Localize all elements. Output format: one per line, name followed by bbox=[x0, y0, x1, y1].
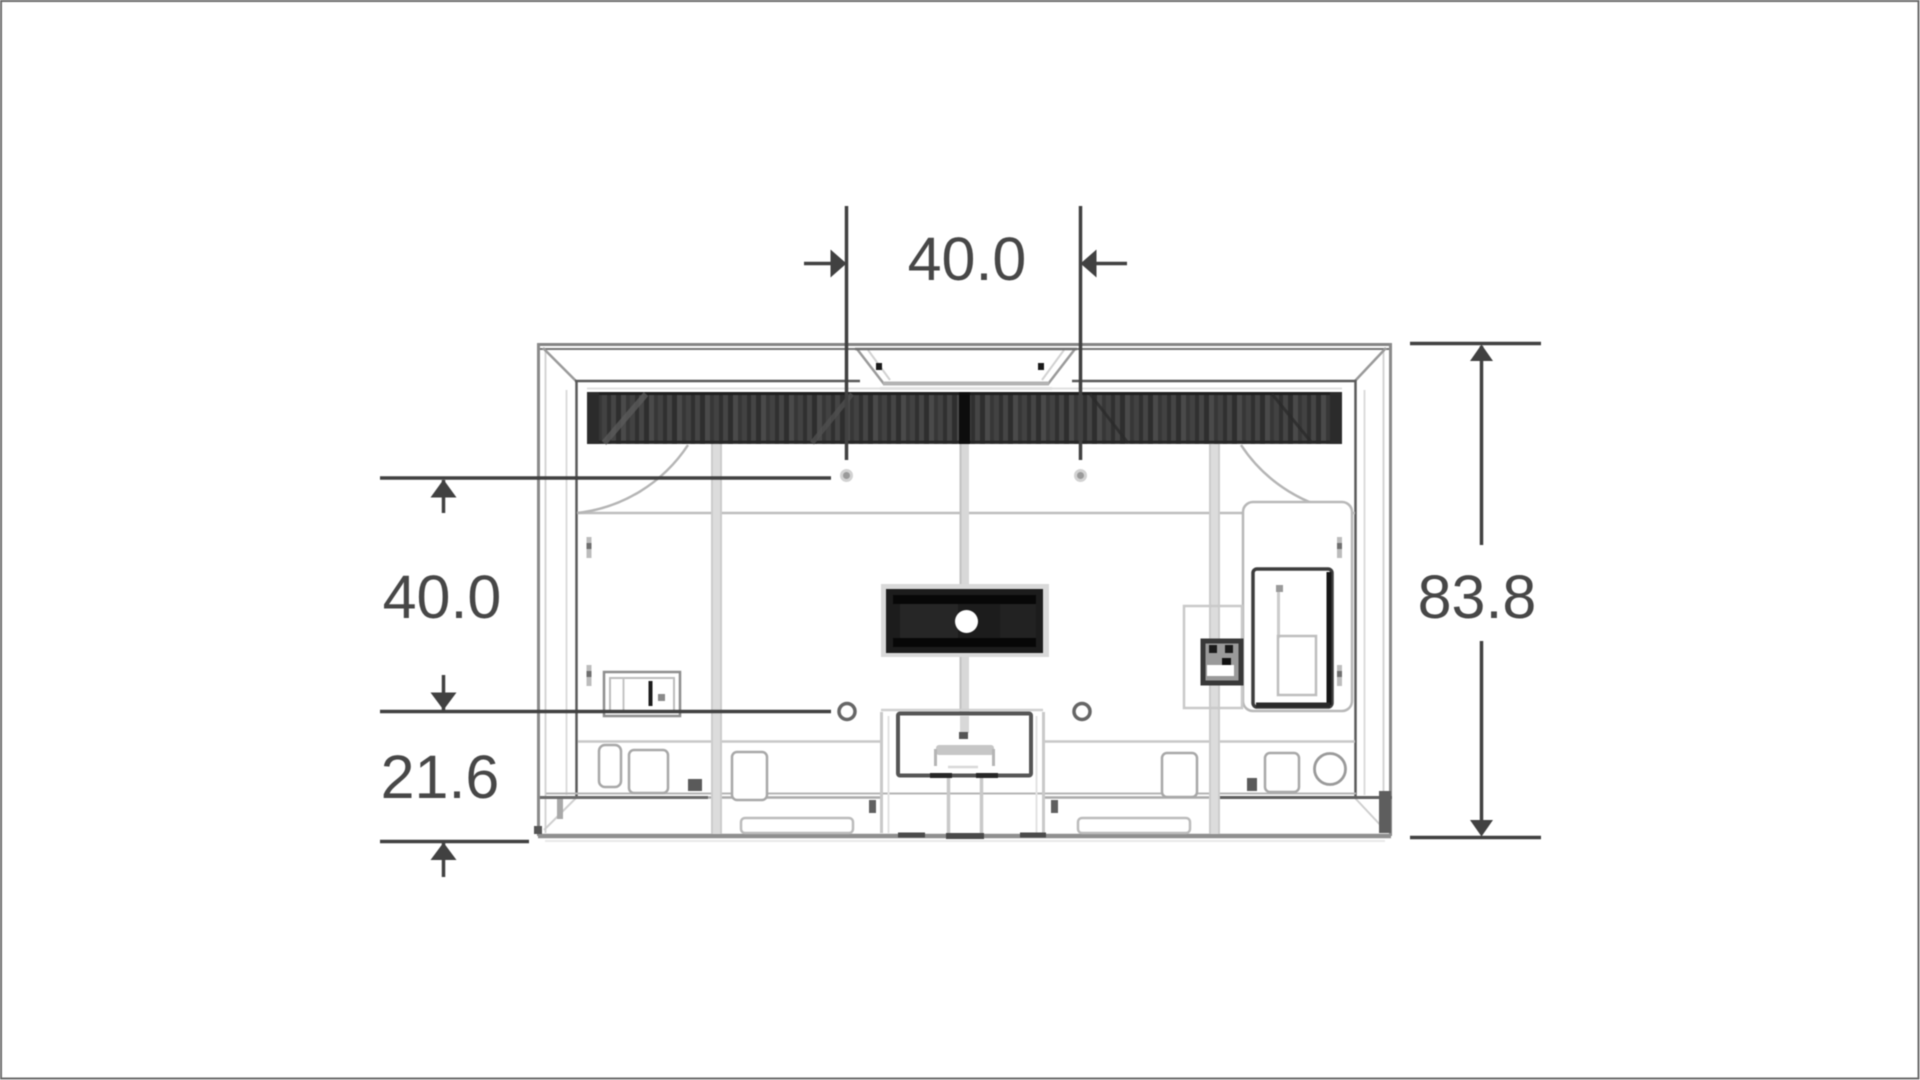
svg-text:83.8: 83.8 bbox=[1418, 563, 1537, 631]
svg-text:40.0: 40.0 bbox=[383, 563, 502, 631]
svg-text:21.6: 21.6 bbox=[381, 743, 500, 811]
svg-text:40.0: 40.0 bbox=[908, 225, 1027, 293]
